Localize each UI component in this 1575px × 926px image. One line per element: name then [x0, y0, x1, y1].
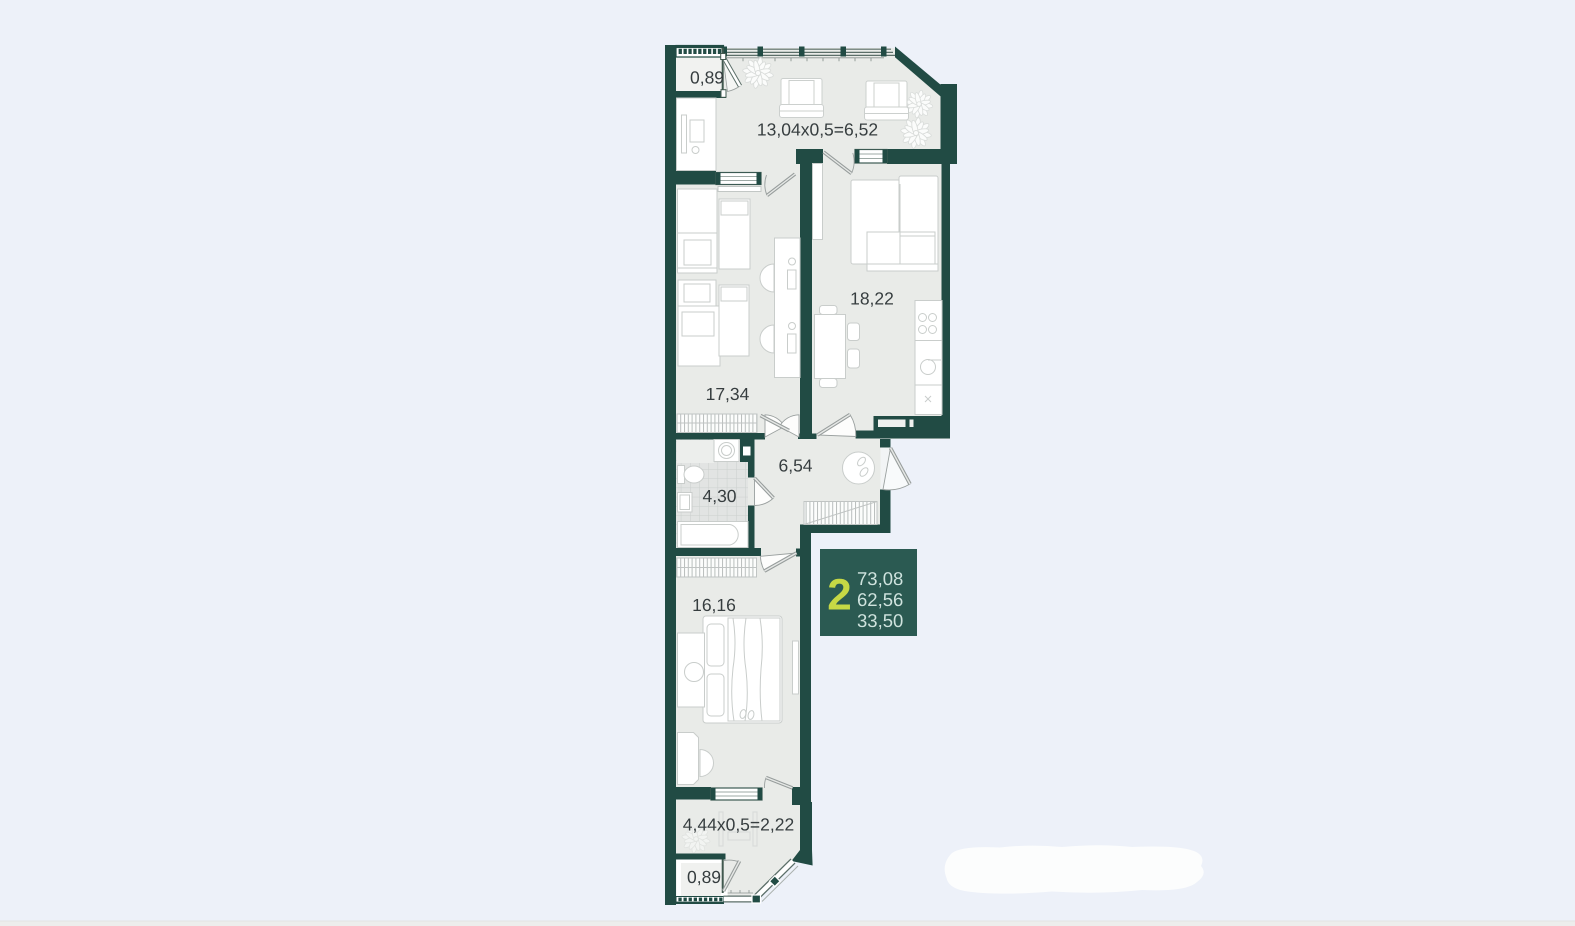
svg-text:13,04x0,5=6,52: 13,04x0,5=6,52 — [757, 120, 878, 140]
svg-text:6,54: 6,54 — [778, 456, 812, 476]
svg-text:4,30: 4,30 — [702, 486, 736, 506]
svg-text:0,89: 0,89 — [687, 867, 721, 887]
svg-text:17,34: 17,34 — [706, 384, 750, 404]
svg-text:2: 2 — [827, 571, 851, 620]
svg-text:73,08: 73,08 — [857, 568, 903, 589]
svg-text:0,89: 0,89 — [690, 68, 724, 88]
svg-text:16,16: 16,16 — [692, 595, 736, 615]
svg-text:18,22: 18,22 — [850, 289, 894, 309]
svg-text:4,44x0,5=2,22: 4,44x0,5=2,22 — [683, 815, 794, 835]
svg-text:62,56: 62,56 — [857, 589, 903, 610]
svg-text:33,50: 33,50 — [857, 610, 903, 631]
